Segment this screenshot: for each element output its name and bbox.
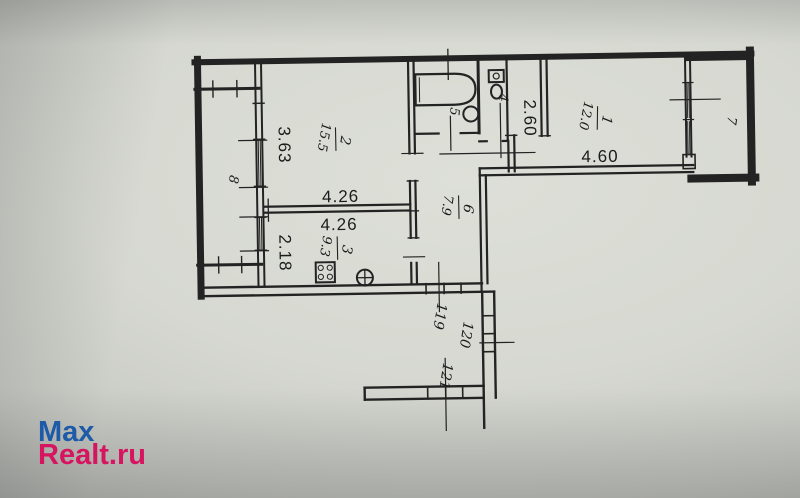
landing-walls	[363, 261, 516, 431]
kitchen-fixtures	[316, 262, 373, 287]
bathtub	[415, 73, 475, 105]
dim-4-26-b: 4.26	[320, 215, 357, 235]
dim-4-26-a: 4.26	[322, 187, 359, 207]
toilet-tank	[489, 70, 504, 82]
dim-3-63: 3.63	[275, 126, 295, 163]
unit-121-label: 121	[435, 362, 455, 391]
svg-text:3: 3	[338, 244, 355, 255]
dim-2-18: 2.18	[275, 234, 295, 271]
room-1-label: 1 12.0	[575, 100, 617, 136]
bath-sink	[463, 106, 478, 121]
svg-text:15.5: 15.5	[314, 122, 333, 153]
left-window-wall	[237, 61, 269, 286]
room-7-label: 7	[723, 115, 739, 126]
dim-4-60: 4.60	[581, 147, 618, 167]
room-5-label: 5	[446, 107, 462, 116]
svg-text:12.0: 12.0	[575, 100, 595, 131]
unit-number-labels: 119 120 121	[429, 301, 477, 391]
watermark-line-2: Realt.ru	[38, 444, 146, 467]
dim-2-60: 2.60	[520, 99, 540, 136]
floorplan-photo: 3.63 2.18 4.26 4.26 2.60 4.60 1 12.0 2 1…	[0, 0, 800, 498]
room-6-label: 6 7.9	[437, 193, 477, 221]
unit-119-label: 119	[429, 302, 449, 331]
interior-walls	[200, 55, 695, 298]
site-watermark: Max Realt.ru	[38, 421, 146, 467]
room-8-label: 8	[225, 174, 241, 185]
svg-text:7.9: 7.9	[437, 194, 455, 217]
room-4-label: 4	[495, 92, 511, 102]
svg-text:6: 6	[459, 203, 476, 214]
svg-text:9.3: 9.3	[316, 235, 334, 258]
svg-text:2: 2	[336, 134, 353, 146]
room-3-label: 3 9.3	[316, 234, 356, 262]
svg-text:1: 1	[598, 114, 615, 126]
stove	[316, 262, 335, 282]
unit-120-label: 120	[456, 320, 476, 349]
right-window-wall	[669, 54, 721, 169]
room-2-label: 2 15.5	[314, 122, 355, 156]
